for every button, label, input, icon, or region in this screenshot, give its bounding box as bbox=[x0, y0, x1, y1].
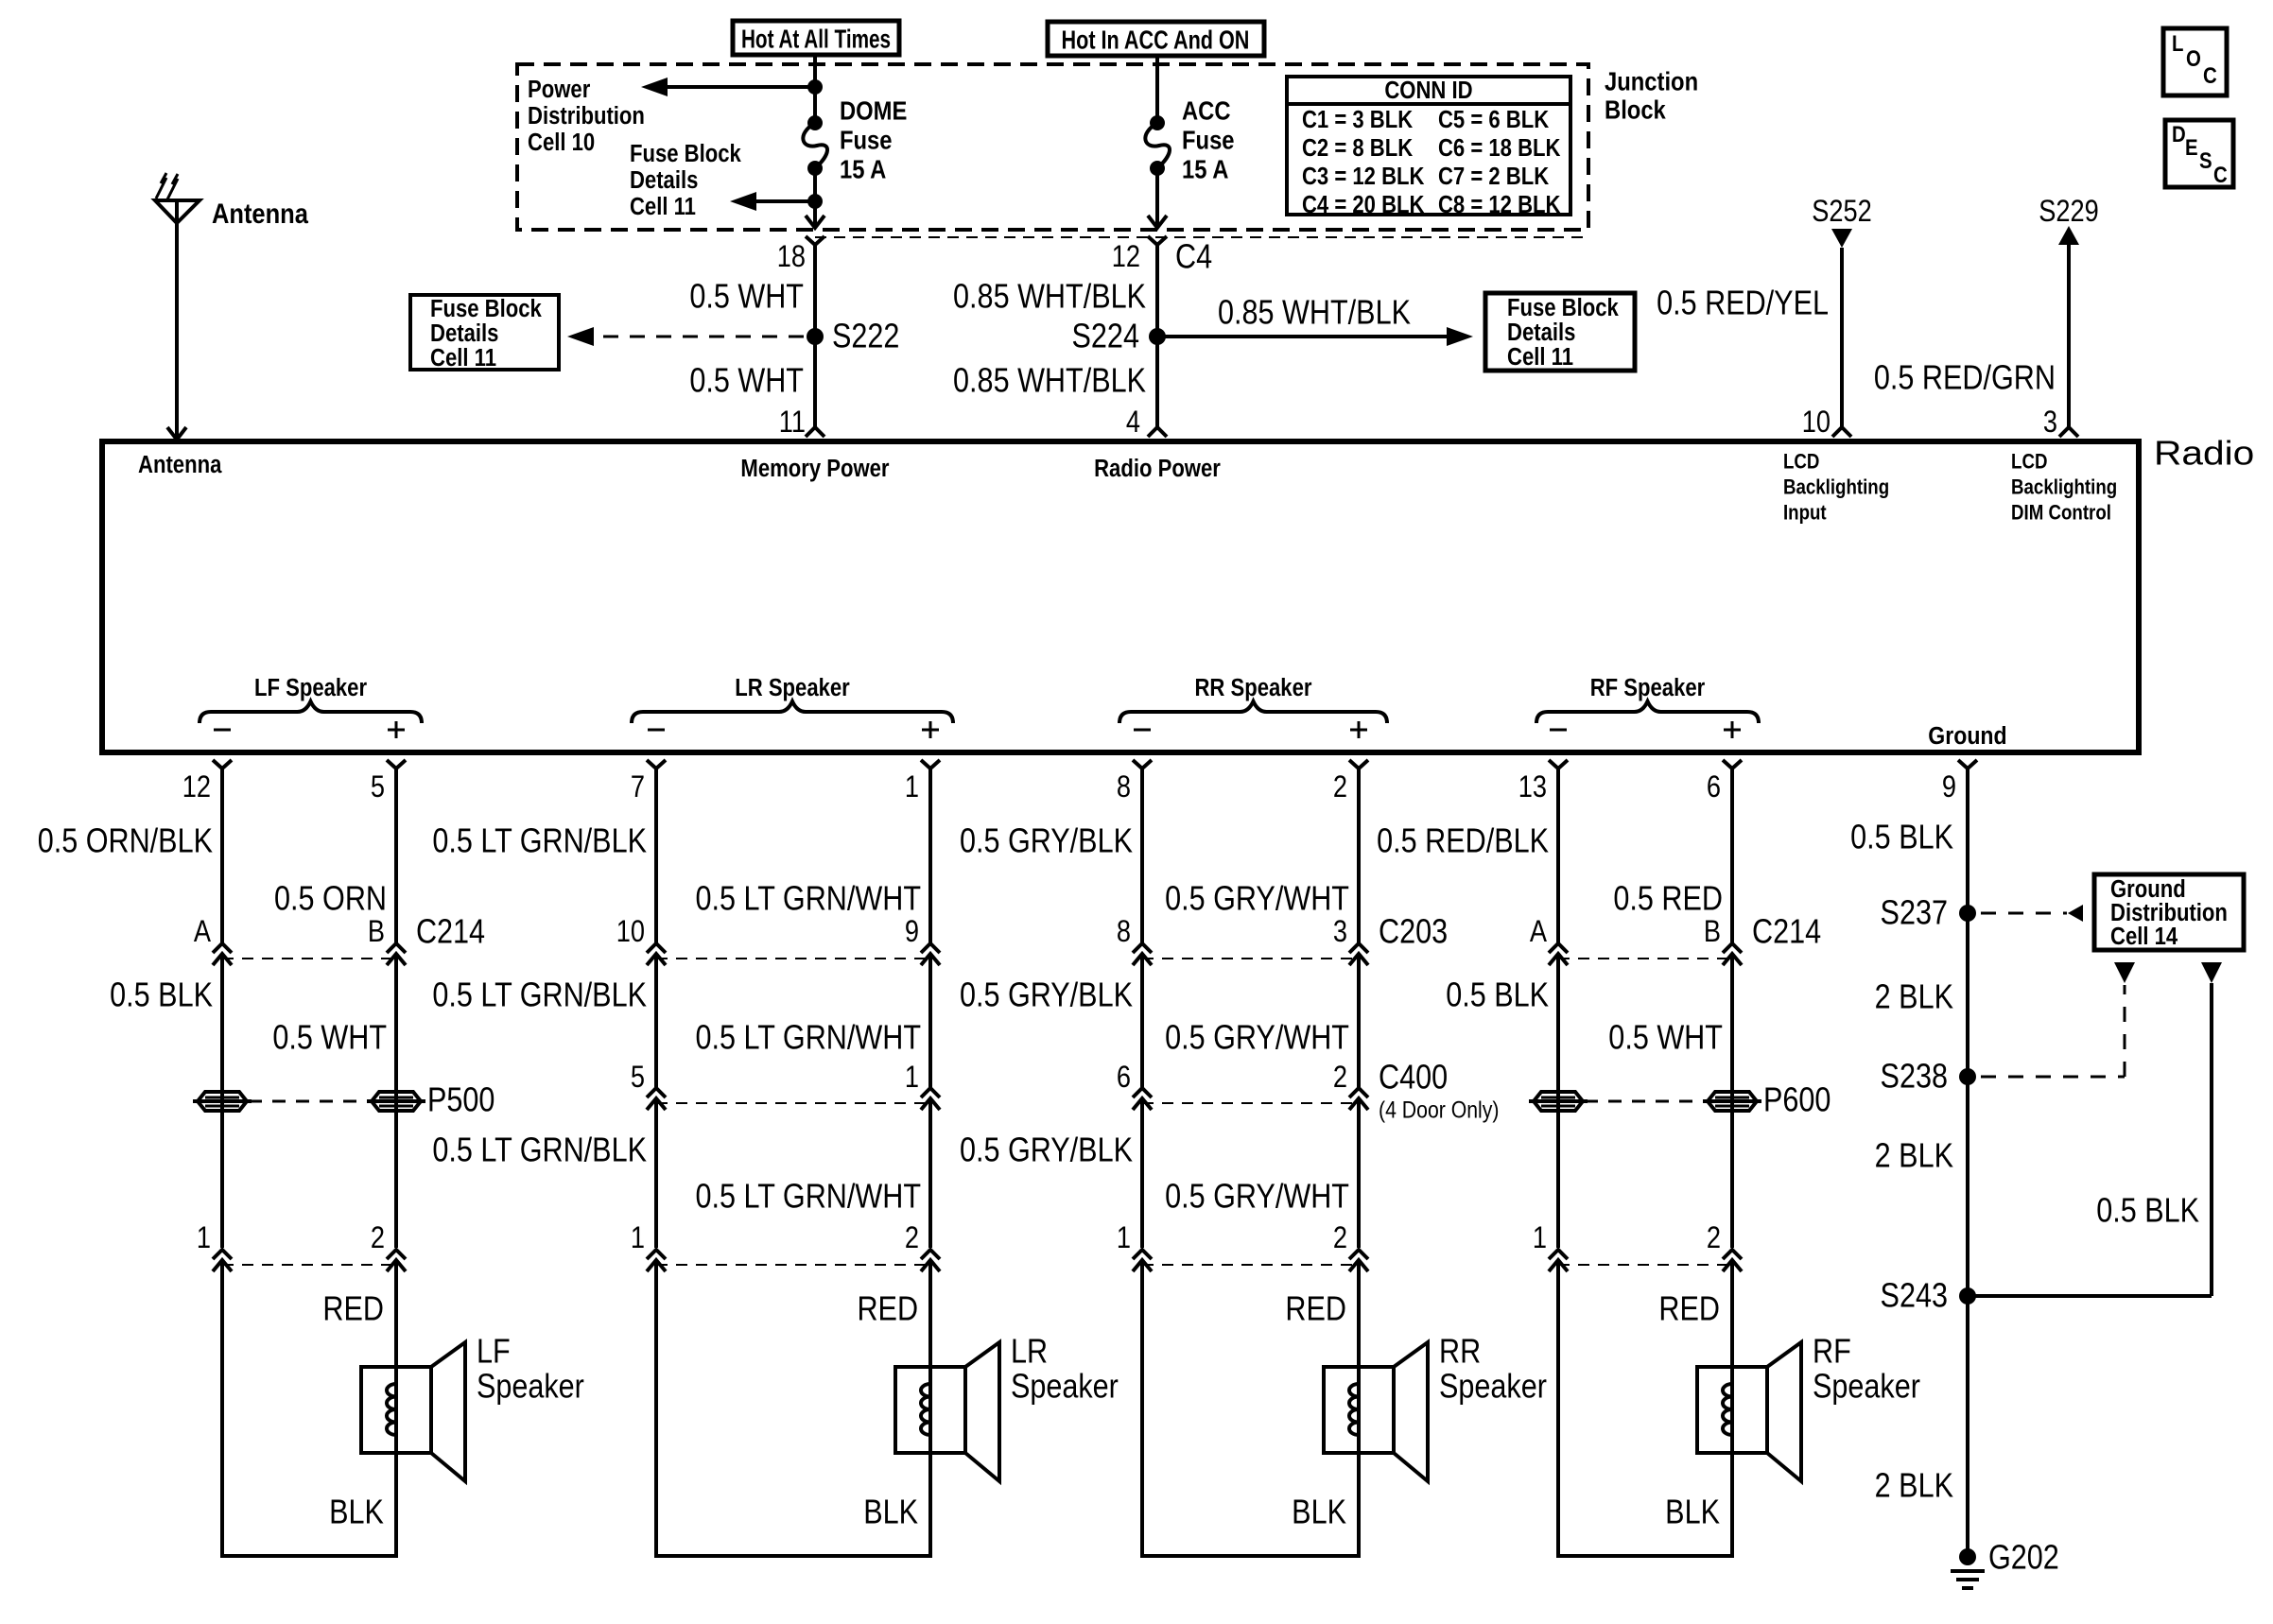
svg-text:LF: LF bbox=[477, 1333, 511, 1371]
svg-text:C214: C214 bbox=[416, 913, 485, 951]
svg-text:0.5 GRY/WHT: 0.5 GRY/WHT bbox=[1165, 880, 1349, 918]
svg-text:18: 18 bbox=[777, 240, 806, 274]
svg-text:13: 13 bbox=[1518, 770, 1547, 804]
svg-text:0.5 WHT: 0.5 WHT bbox=[1608, 1019, 1723, 1057]
svg-text:8: 8 bbox=[1117, 915, 1131, 949]
svg-text:Backlighting: Backlighting bbox=[1783, 476, 1889, 499]
svg-text:0.5 RED/GRN: 0.5 RED/GRN bbox=[1874, 359, 2056, 397]
svg-text:C4: C4 bbox=[1175, 238, 1212, 276]
svg-text:15 A: 15 A bbox=[840, 154, 887, 184]
svg-text:1: 1 bbox=[905, 1061, 919, 1095]
svg-text:S243: S243 bbox=[1881, 1277, 1948, 1315]
svg-text:0.5 BLK: 0.5 BLK bbox=[2096, 1192, 2199, 1230]
svg-text:15 A: 15 A bbox=[1182, 154, 1229, 184]
svg-text:S229: S229 bbox=[2039, 195, 2099, 229]
svg-text:BLK: BLK bbox=[329, 1494, 384, 1531]
svg-text:Hot In ACC And ON: Hot In ACC And ON bbox=[1062, 25, 1250, 55]
svg-text:0.5 LT GRN/WHT: 0.5 LT GRN/WHT bbox=[696, 1178, 921, 1216]
svg-text:S: S bbox=[2199, 148, 2212, 174]
svg-text:9: 9 bbox=[905, 915, 919, 949]
svg-text:A: A bbox=[194, 915, 211, 949]
svg-text:RR Speaker: RR Speaker bbox=[1195, 674, 1313, 701]
svg-text:2 BLK: 2 BLK bbox=[1875, 1467, 1953, 1505]
svg-text:4: 4 bbox=[1126, 406, 1140, 440]
svg-text:DOME: DOME bbox=[840, 95, 907, 126]
svg-text:5: 5 bbox=[371, 770, 385, 804]
svg-text:RF Speaker: RF Speaker bbox=[1590, 674, 1706, 701]
svg-text:0.5 LT GRN/BLK: 0.5 LT GRN/BLK bbox=[432, 822, 647, 860]
svg-text:Fuse Block: Fuse Block bbox=[630, 140, 741, 167]
svg-text:2: 2 bbox=[371, 1221, 385, 1255]
svg-text:RED: RED bbox=[1658, 1290, 1720, 1328]
svg-text:Memory Power: Memory Power bbox=[740, 455, 890, 482]
svg-text:LR Speaker: LR Speaker bbox=[735, 674, 850, 701]
svg-text:S224: S224 bbox=[1072, 318, 1139, 355]
svg-text:Cell 11: Cell 11 bbox=[1507, 343, 1573, 371]
svg-text:0.5 WHT: 0.5 WHT bbox=[272, 1019, 387, 1057]
svg-text:Cell 11: Cell 11 bbox=[630, 193, 696, 220]
svg-text:Power: Power bbox=[528, 76, 591, 103]
svg-text:5: 5 bbox=[631, 1061, 645, 1095]
svg-text:ACC: ACC bbox=[1182, 95, 1231, 126]
svg-text:Distribution: Distribution bbox=[528, 102, 645, 130]
svg-text:C1 = 3 BLK: C1 = 3 BLK bbox=[1302, 106, 1414, 133]
svg-text:LF Speaker: LF Speaker bbox=[254, 674, 368, 701]
svg-text:8: 8 bbox=[1117, 770, 1131, 804]
svg-text:Fuse: Fuse bbox=[1182, 125, 1235, 155]
svg-text:0.5 WHT: 0.5 WHT bbox=[689, 362, 804, 400]
svg-text:3: 3 bbox=[2043, 406, 2057, 440]
svg-text:0.5 LT GRN/WHT: 0.5 LT GRN/WHT bbox=[696, 880, 921, 918]
svg-text:Block: Block bbox=[1605, 95, 1666, 125]
svg-text:S222: S222 bbox=[832, 318, 899, 355]
svg-text:BLK: BLK bbox=[863, 1494, 918, 1531]
svg-text:0.5 WHT: 0.5 WHT bbox=[689, 278, 804, 316]
svg-text:Input: Input bbox=[1783, 502, 1827, 525]
svg-text:2: 2 bbox=[1333, 1221, 1347, 1255]
svg-text:BLK: BLK bbox=[1292, 1494, 1346, 1531]
svg-text:L: L bbox=[2172, 31, 2183, 57]
svg-text:BLK: BLK bbox=[1665, 1494, 1720, 1531]
svg-text:Speaker: Speaker bbox=[477, 1368, 584, 1406]
svg-text:0.5 BLK: 0.5 BLK bbox=[1446, 976, 1549, 1014]
svg-text:Fuse: Fuse bbox=[840, 125, 893, 155]
svg-text:RF: RF bbox=[1813, 1333, 1851, 1371]
svg-text:LCD: LCD bbox=[1783, 451, 1819, 474]
svg-text:10: 10 bbox=[616, 915, 645, 949]
svg-text:E: E bbox=[2185, 135, 2198, 161]
svg-text:0.85 WHT/BLK: 0.85 WHT/BLK bbox=[953, 278, 1146, 316]
svg-text:0.5 ORN: 0.5 ORN bbox=[274, 880, 387, 918]
svg-text:Cell 11: Cell 11 bbox=[430, 344, 496, 371]
svg-text:G202: G202 bbox=[1988, 1539, 2059, 1577]
svg-text:P500: P500 bbox=[427, 1081, 495, 1119]
svg-text:Details: Details bbox=[1507, 319, 1575, 346]
svg-text:Junction: Junction bbox=[1605, 66, 1698, 96]
svg-text:Radio Power: Radio Power bbox=[1094, 455, 1221, 482]
svg-text:1: 1 bbox=[197, 1221, 211, 1255]
svg-text:Hot At All Times: Hot At All Times bbox=[741, 24, 891, 54]
svg-text:B: B bbox=[1704, 915, 1721, 949]
svg-text:2: 2 bbox=[1333, 1061, 1347, 1095]
svg-text:C203: C203 bbox=[1379, 913, 1448, 951]
svg-text:0.5 RED: 0.5 RED bbox=[1613, 880, 1723, 918]
svg-text:10: 10 bbox=[1802, 406, 1831, 440]
svg-text:0.5 GRY/BLK: 0.5 GRY/BLK bbox=[960, 976, 1133, 1014]
svg-text:Speaker: Speaker bbox=[1439, 1368, 1547, 1406]
svg-text:1: 1 bbox=[1533, 1221, 1547, 1255]
svg-text:0.5 GRY/BLK: 0.5 GRY/BLK bbox=[960, 822, 1133, 860]
svg-text:S237: S237 bbox=[1881, 894, 1948, 932]
svg-text:7: 7 bbox=[631, 770, 645, 804]
svg-text:RR: RR bbox=[1439, 1333, 1481, 1371]
svg-text:Ground: Ground bbox=[1928, 722, 2006, 750]
svg-text:9: 9 bbox=[1942, 770, 1956, 804]
svg-text:Cell 10: Cell 10 bbox=[528, 129, 595, 156]
svg-text:0.85 WHT/BLK: 0.85 WHT/BLK bbox=[1218, 294, 1411, 332]
svg-text:C: C bbox=[2203, 63, 2217, 89]
svg-text:(4 Door Only): (4 Door Only) bbox=[1379, 1097, 1499, 1123]
svg-text:C4 = 20 BLK: C4 = 20 BLK bbox=[1302, 191, 1425, 218]
svg-text:3: 3 bbox=[1333, 915, 1347, 949]
svg-text:Backlighting: Backlighting bbox=[2011, 476, 2117, 499]
svg-text:RED: RED bbox=[1285, 1290, 1346, 1328]
svg-text:CONN ID: CONN ID bbox=[1384, 77, 1472, 104]
svg-text:Details: Details bbox=[430, 320, 498, 347]
svg-text:0.85 WHT/BLK: 0.85 WHT/BLK bbox=[953, 362, 1146, 400]
svg-text:C5 = 6 BLK: C5 = 6 BLK bbox=[1438, 106, 1550, 133]
svg-text:C7 = 2 BLK: C7 = 2 BLK bbox=[1438, 163, 1550, 190]
svg-text:Fuse Block: Fuse Block bbox=[430, 295, 542, 322]
svg-text:0.5 GRY/WHT: 0.5 GRY/WHT bbox=[1165, 1178, 1349, 1216]
svg-text:S252: S252 bbox=[1812, 195, 1872, 229]
svg-text:2 BLK: 2 BLK bbox=[1875, 1137, 1953, 1175]
svg-text:P600: P600 bbox=[1763, 1081, 1831, 1119]
svg-text:A: A bbox=[1530, 915, 1547, 949]
svg-text:Antenna: Antenna bbox=[138, 451, 222, 478]
svg-text:S238: S238 bbox=[1881, 1058, 1948, 1096]
svg-text:0.5 BLK: 0.5 BLK bbox=[110, 976, 213, 1014]
svg-text:C: C bbox=[2213, 163, 2228, 188]
svg-text:RED: RED bbox=[322, 1290, 384, 1328]
svg-text:0.5 LT GRN/BLK: 0.5 LT GRN/BLK bbox=[432, 1132, 647, 1169]
svg-text:1: 1 bbox=[1117, 1221, 1131, 1255]
svg-text:Speaker: Speaker bbox=[1813, 1368, 1920, 1406]
svg-text:1: 1 bbox=[905, 770, 919, 804]
svg-text:C6 = 18 BLK: C6 = 18 BLK bbox=[1438, 134, 1561, 162]
svg-text:C3 = 12 BLK: C3 = 12 BLK bbox=[1302, 163, 1425, 190]
svg-text:2: 2 bbox=[905, 1221, 919, 1255]
svg-text:0.5 ORN/BLK: 0.5 ORN/BLK bbox=[38, 822, 213, 860]
svg-text:12: 12 bbox=[182, 770, 211, 804]
svg-text:C8 = 12 BLK: C8 = 12 BLK bbox=[1438, 191, 1561, 218]
svg-text:D: D bbox=[2172, 122, 2186, 147]
svg-text:2: 2 bbox=[1707, 1221, 1721, 1255]
svg-text:RED: RED bbox=[857, 1290, 918, 1328]
svg-text:6: 6 bbox=[1117, 1061, 1131, 1095]
svg-text:Details: Details bbox=[630, 166, 698, 194]
svg-text:2 BLK: 2 BLK bbox=[1875, 978, 1953, 1016]
svg-text:0.5 GRY/WHT: 0.5 GRY/WHT bbox=[1165, 1019, 1349, 1057]
svg-text:12: 12 bbox=[1112, 240, 1140, 274]
svg-text:Antenna: Antenna bbox=[212, 198, 308, 229]
svg-text:Radio: Radio bbox=[2154, 435, 2254, 473]
svg-text:C400: C400 bbox=[1379, 1059, 1448, 1097]
svg-text:Cell 14: Cell 14 bbox=[2110, 923, 2178, 950]
svg-text:Speaker: Speaker bbox=[1011, 1368, 1119, 1406]
svg-text:B: B bbox=[368, 915, 385, 949]
svg-text:O: O bbox=[2186, 46, 2201, 72]
svg-text:0.5 GRY/BLK: 0.5 GRY/BLK bbox=[960, 1132, 1133, 1169]
svg-text:11: 11 bbox=[779, 406, 806, 440]
svg-text:1: 1 bbox=[631, 1221, 645, 1255]
svg-text:DIM Control: DIM Control bbox=[2011, 502, 2111, 525]
svg-text:LR: LR bbox=[1011, 1333, 1048, 1371]
svg-text:0.5 LT GRN/BLK: 0.5 LT GRN/BLK bbox=[432, 976, 647, 1014]
svg-text:2: 2 bbox=[1333, 770, 1347, 804]
svg-text:C214: C214 bbox=[1752, 913, 1821, 951]
svg-text:6: 6 bbox=[1707, 770, 1721, 804]
svg-text:0.5 RED/BLK: 0.5 RED/BLK bbox=[1377, 822, 1549, 860]
svg-text:0.5 LT GRN/WHT: 0.5 LT GRN/WHT bbox=[696, 1019, 921, 1057]
svg-text:Fuse Block: Fuse Block bbox=[1507, 294, 1619, 321]
svg-text:0.5 BLK: 0.5 BLK bbox=[1850, 819, 1953, 856]
svg-text:LCD: LCD bbox=[2011, 451, 2047, 474]
svg-text:0.5 RED/YEL: 0.5 RED/YEL bbox=[1657, 285, 1829, 322]
svg-text:C2 = 8 BLK: C2 = 8 BLK bbox=[1302, 134, 1414, 162]
